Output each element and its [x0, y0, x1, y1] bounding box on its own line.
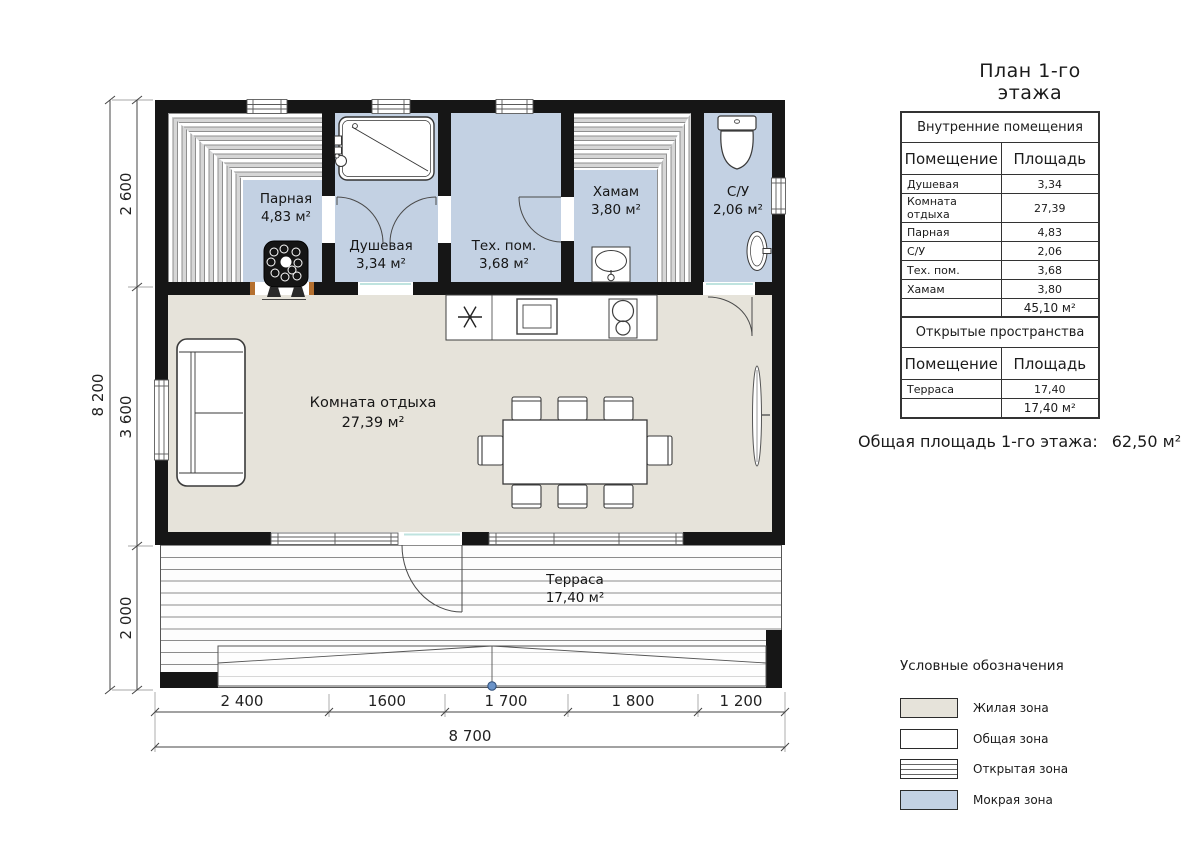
legend-swatch-living: [900, 698, 958, 718]
total-area-label: Общая площадь 1-го этажа:: [858, 432, 1098, 451]
room-lounge: [168, 295, 772, 532]
room-label-dushevaya: Душевая3,34 м²: [331, 237, 431, 273]
page-title: План 1-го этажа: [950, 60, 1110, 104]
legend-swatch-open: [900, 759, 958, 779]
wall-segment: [322, 113, 335, 196]
table-row: Хамам3,80: [901, 280, 1099, 299]
room-label-tekh: Тех. пом.3,68 м²: [454, 237, 554, 273]
dim-segment: 2 000: [117, 597, 135, 640]
open-spaces-table: Открытые пространства Помещение Площадь …: [900, 316, 1100, 419]
wall-right: [772, 100, 785, 545]
terrace-post-right: [766, 630, 782, 688]
dim-segment: 1 700: [485, 692, 528, 710]
total-area-value: 62,50 м²: [1112, 432, 1181, 451]
table-title: Открытые пространства: [901, 317, 1099, 348]
wall-segment: [561, 241, 574, 282]
wall-segment: [413, 282, 703, 295]
room-label-terrace: Терраса17,40 м²: [515, 571, 635, 607]
dim-segment: 2 400: [221, 692, 264, 710]
column-header-area: Площадь: [1001, 143, 1099, 175]
room-terrace-deck: [160, 545, 782, 688]
legend-label: Открытая зона: [973, 762, 1068, 776]
wall-segment: [438, 243, 451, 282]
wall-segment: [438, 113, 451, 196]
wall-segment: [755, 282, 785, 295]
legend-swatch-wet: [900, 790, 958, 810]
legend-label: Общая зона: [973, 732, 1048, 746]
table-row: Комната отдыха27,39: [901, 194, 1099, 223]
dim-segment: 1 200: [720, 692, 763, 710]
room-label-su: С/У2,06 м²: [688, 183, 788, 219]
wall-top: [155, 100, 785, 113]
interior-rooms-table: Внутренние помещения Помещение Площадь Д…: [900, 111, 1100, 319]
dim-segment: 2 600: [117, 173, 135, 216]
wall-segment: [314, 282, 358, 295]
dim-total-bottom: 8 700: [449, 727, 492, 745]
legend-title: Условные обозначения: [900, 658, 1064, 674]
dim-segment: 1 800: [612, 692, 655, 710]
floor-plan-sheet: Парная4,83 м² Душевая3,34 м² Тех. пом.3,…: [0, 0, 1200, 849]
column-header-area: Площадь: [1001, 348, 1099, 380]
dim-segment: 3 600: [117, 396, 135, 439]
column-header-room: Помещение: [901, 348, 1001, 380]
wall-segment: [462, 532, 489, 545]
column-header-room: Помещение: [901, 143, 1001, 175]
dim-segment: 1600: [368, 692, 406, 710]
table-row: Терраса17,40: [901, 380, 1099, 399]
room-label-parnaya: Парная4,83 м²: [236, 190, 336, 226]
legend-label: Жилая зона: [973, 701, 1049, 715]
room-label-lounge: Комната отдыха27,39 м²: [293, 393, 453, 433]
room-label-hamam: Хамам3,80 м²: [566, 183, 666, 219]
wall-segment: [155, 282, 250, 295]
total-area-summary: Общая площадь 1-го этажа:62,50 м²: [858, 432, 1181, 451]
terrace-post-left: [160, 672, 218, 688]
table-row: Душевая3,34: [901, 175, 1099, 194]
wall-segment: [155, 532, 271, 545]
wall-left: [155, 100, 168, 545]
table-row: Парная4,83: [901, 223, 1099, 242]
table-row: Тех. пом.3,68: [901, 261, 1099, 280]
table-total-row: 17,40 м²: [901, 399, 1099, 419]
table-row: С/У2,06: [901, 242, 1099, 261]
legend-label: Мокрая зона: [973, 793, 1053, 807]
dim-total-left: 8 200: [89, 374, 107, 417]
stove-jamb-left: [250, 282, 255, 295]
legend-swatch-common: [900, 729, 958, 749]
table-total: 17,40 м²: [1001, 399, 1099, 419]
wall-segment: [683, 532, 785, 545]
table-title: Внутренние помещения: [901, 112, 1099, 143]
